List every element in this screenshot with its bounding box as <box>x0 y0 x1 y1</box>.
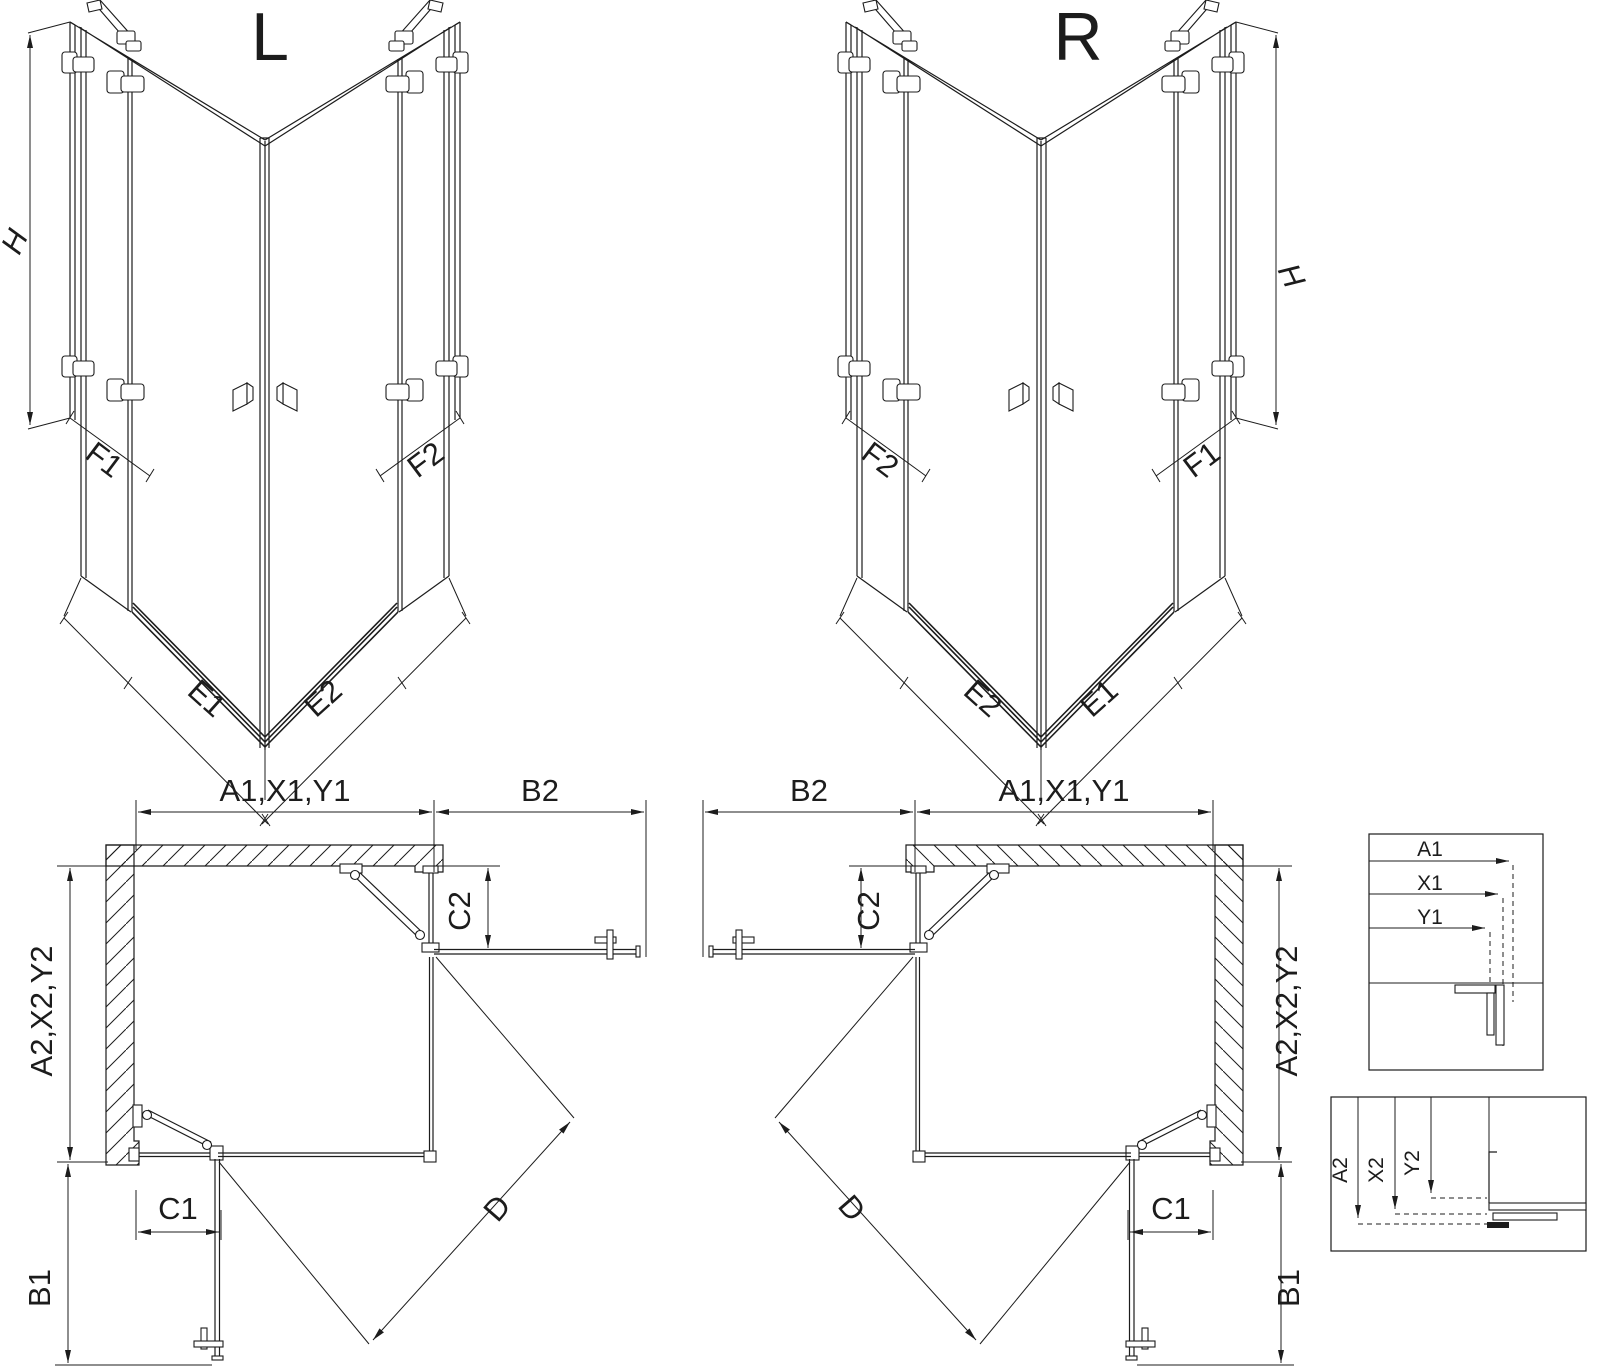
plan-right-b2-label: B2 <box>790 773 828 808</box>
dim-label-f2-left: F2 <box>401 435 451 485</box>
dim-label-height-right: H <box>1271 258 1312 294</box>
detail-box-bottom: A2 X2 Y2 <box>1329 1097 1586 1251</box>
plan-left-c2-label: C2 <box>442 891 477 931</box>
plan-left-d-label: D <box>477 1188 518 1228</box>
plan-left-b2-label: B2 <box>521 773 559 808</box>
dim-label-e1-right: E1 <box>1073 673 1125 724</box>
technical-drawing-sheet: L H F1 E1 E2 F2 R H F2 E2 E1 F1 A1,X1,Y1… <box>0 0 1600 1371</box>
detail-a2-label: A2 <box>1329 1157 1352 1183</box>
dim-label-f2-right: F2 <box>855 435 905 485</box>
plan-view-right: B2 A1,X1,Y1 C2 A2,X2,Y2 C1 B1 D <box>703 773 1306 1365</box>
detail-a1-label: A1 <box>1417 838 1443 861</box>
iso-view-right: R H F2 E2 E1 F1 <box>836 0 1312 826</box>
iso-view-left: L H F1 E1 E2 F2 <box>0 0 470 826</box>
iso-right-title: R <box>1053 0 1102 75</box>
detail-box-top: A1 X1 Y1 <box>1369 834 1543 1070</box>
plan-right-c2-label: C2 <box>851 891 886 931</box>
plan-view-left: A1,X1,Y1 B2 C2 A2,X2,Y2 C1 B1 D <box>22 773 646 1365</box>
plan-right-side-width-label: A2,X2,Y2 <box>1269 946 1304 1077</box>
detail-x2-label: X2 <box>1365 1157 1388 1183</box>
dim-label-e2-left: E2 <box>297 673 349 724</box>
plan-left-side-width-label: A2,X2,Y2 <box>24 946 59 1077</box>
detail-y2-label: Y2 <box>1401 1150 1424 1176</box>
plan-right-top-width-label: A1,X1,Y1 <box>999 773 1130 808</box>
dim-label-e2-right: E2 <box>957 673 1009 724</box>
detail-x1-label: X1 <box>1417 872 1443 895</box>
iso-left-title: L <box>251 0 289 75</box>
plan-left-c1-label: C1 <box>158 1191 198 1226</box>
dim-label-e1-left: E1 <box>181 673 233 724</box>
dim-label-f1-right: F1 <box>1177 435 1227 485</box>
detail-y1-label: Y1 <box>1417 906 1443 929</box>
plan-right-c1-label: C1 <box>1151 1191 1191 1226</box>
shower-enclosure-diagram: L H F1 E1 E2 F2 R H F2 E2 E1 F1 A1,X1,Y1… <box>0 0 1600 1371</box>
plan-right-d-label: D <box>831 1188 872 1228</box>
dim-label-f1-left: F1 <box>79 435 129 485</box>
plan-left-b1-label: B1 <box>22 1269 57 1307</box>
plan-right-b1-label: B1 <box>1271 1269 1306 1307</box>
plan-left-top-width-label: A1,X1,Y1 <box>220 773 351 808</box>
